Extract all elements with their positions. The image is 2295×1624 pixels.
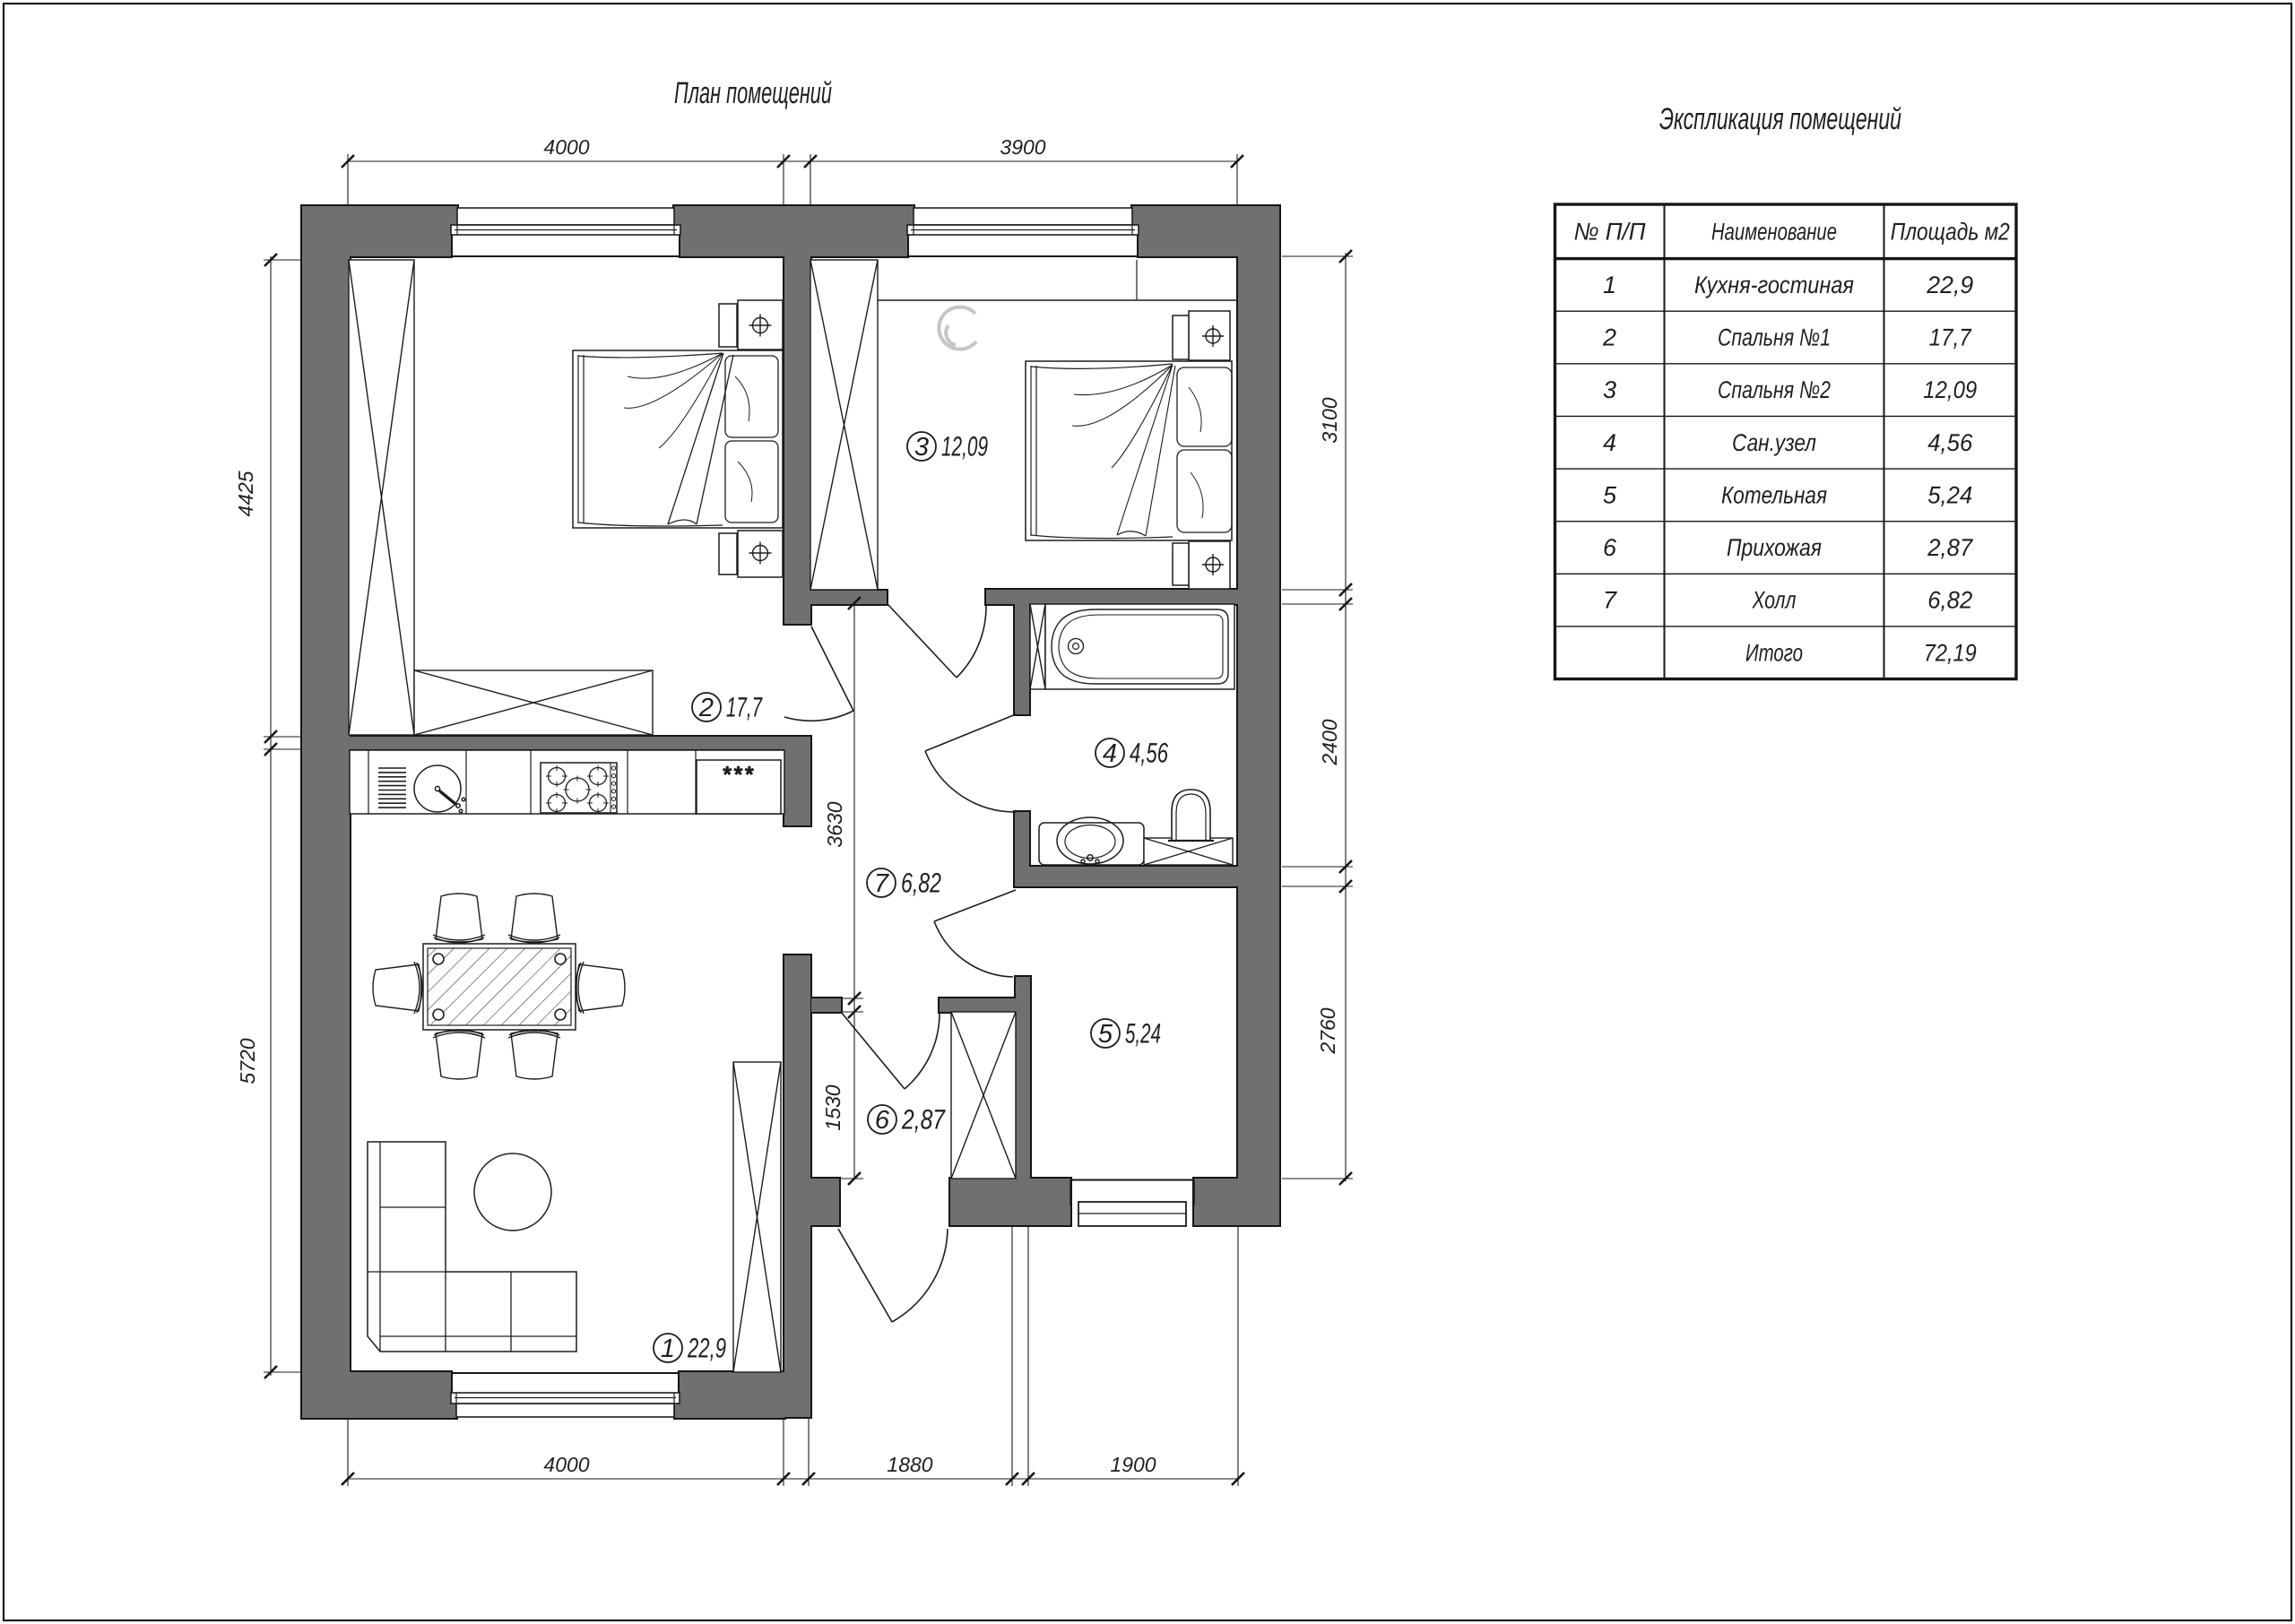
svg-text:22,9: 22,9 [1926, 272, 1973, 298]
svg-text:7: 7 [874, 869, 890, 898]
svg-text:12,09: 12,09 [1923, 376, 1977, 403]
svg-text:5: 5 [1603, 481, 1617, 508]
svg-text:5720: 5720 [236, 1038, 259, 1084]
svg-text:17,7: 17,7 [726, 692, 763, 723]
svg-text:***: *** [722, 763, 755, 787]
svg-text:План помещений: План помещений [674, 76, 832, 110]
svg-text:6,82: 6,82 [901, 868, 941, 899]
svg-text:1: 1 [661, 1335, 675, 1363]
svg-text:4: 4 [1103, 739, 1117, 768]
svg-text:2400: 2400 [1318, 719, 1341, 765]
svg-text:Спальня №2: Спальня №2 [1718, 376, 1831, 403]
svg-text:Холл: Холл [1752, 587, 1797, 614]
svg-text:3900: 3900 [1000, 135, 1045, 159]
svg-text:2: 2 [698, 694, 714, 722]
svg-text:4: 4 [1603, 429, 1616, 456]
svg-text:3100: 3100 [1318, 397, 1341, 443]
svg-text:1880: 1880 [887, 1453, 932, 1476]
svg-text:Котельная: Котельная [1721, 481, 1827, 508]
svg-text:1530: 1530 [821, 1084, 844, 1130]
svg-text:5: 5 [1098, 1020, 1113, 1049]
svg-text:1: 1 [1603, 272, 1616, 298]
svg-text:Площадь м2: Площадь м2 [1891, 218, 2010, 245]
svg-text:Прихожая: Прихожая [1727, 534, 1822, 561]
svg-text:6: 6 [1603, 534, 1617, 561]
svg-text:7: 7 [1603, 587, 1617, 614]
svg-text:4,56: 4,56 [1927, 429, 1973, 456]
svg-text:2760: 2760 [1316, 1007, 1339, 1054]
svg-text:2: 2 [1602, 324, 1616, 351]
svg-text:Сан.узел: Сан.узел [1732, 429, 1816, 456]
svg-text:6: 6 [875, 1106, 890, 1135]
svg-text:Кухня-гостиная: Кухня-гостиная [1694, 272, 1854, 298]
svg-text:4425: 4425 [234, 471, 257, 516]
svg-text:4000: 4000 [543, 135, 589, 159]
svg-text:№ П/П: № П/П [1574, 218, 1646, 245]
svg-text:17,7: 17,7 [1929, 324, 1972, 351]
svg-text:22,9: 22,9 [687, 1333, 726, 1364]
svg-text:4,56: 4,56 [1130, 738, 1169, 769]
svg-text:Наименование: Наименование [1711, 218, 1837, 245]
svg-text:4000: 4000 [543, 1453, 589, 1476]
svg-text:Итого: Итого [1745, 639, 1803, 666]
svg-text:2,87: 2,87 [901, 1104, 946, 1136]
svg-text:12,09: 12,09 [941, 431, 988, 462]
svg-text:Спальня №1: Спальня №1 [1718, 324, 1831, 351]
svg-text:72,19: 72,19 [1924, 639, 1977, 666]
svg-text:3630: 3630 [823, 801, 846, 847]
svg-text:5,24: 5,24 [1125, 1018, 1161, 1050]
svg-text:3: 3 [1603, 376, 1616, 403]
svg-text:2,87: 2,87 [1927, 534, 1973, 561]
svg-text:3: 3 [914, 433, 929, 462]
svg-text:6,82: 6,82 [1927, 587, 1972, 614]
svg-text:1900: 1900 [1110, 1453, 1156, 1476]
svg-text:Экспликация помещений: Экспликация помещений [1659, 102, 1901, 136]
svg-text:5,24: 5,24 [1927, 481, 1972, 508]
